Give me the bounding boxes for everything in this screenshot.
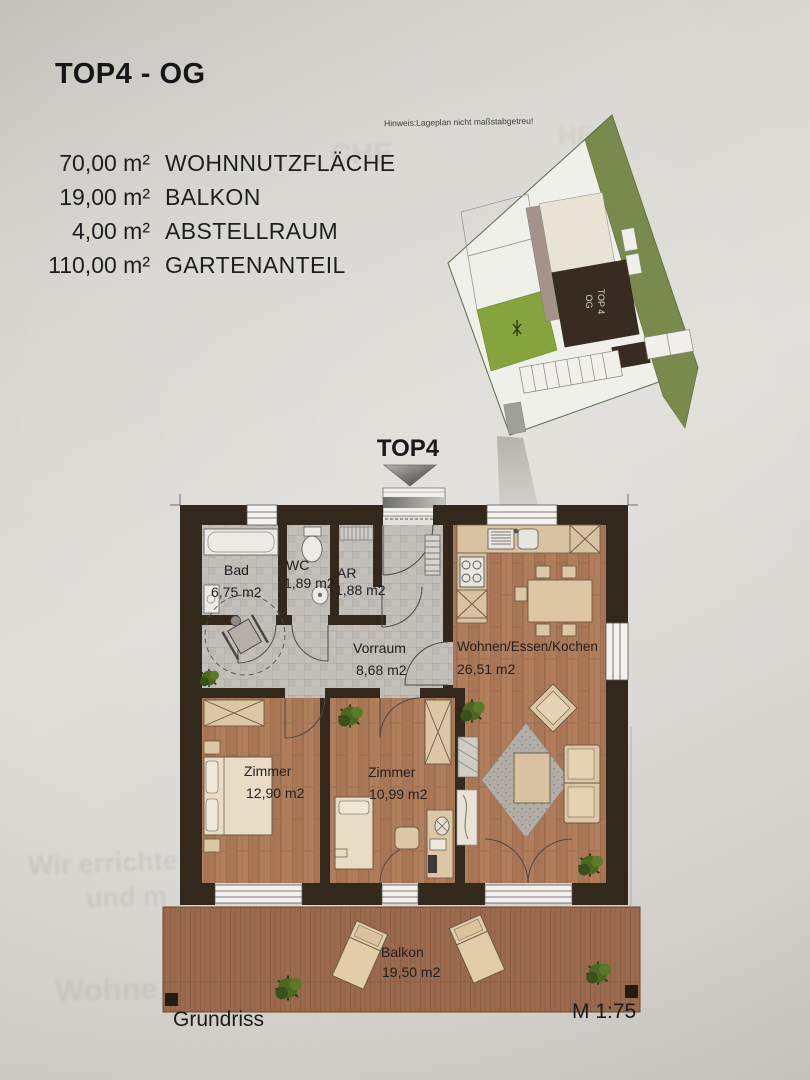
drawing-caption: Grundriss [173,1008,264,1032]
floor-plan: Balkon 19,50 m2 [160,487,645,1017]
plan-pointer-label: TOP4 [371,435,445,463]
nightstand [204,741,220,754]
bleedthrough-text: und m [85,881,167,915]
balcony-post [165,993,178,1006]
stat-row: 19,00 m² BALKON [36,180,395,214]
bathtub [204,529,278,555]
desk [427,810,453,878]
stat-label: BALKON [165,180,261,214]
wardrobe [425,700,451,764]
stat-row: 110,00 m² GARTENANTEIL [36,248,395,282]
stat-value: 110,00 m² [36,248,150,282]
room-area: 19,50 m2 [382,964,441,980]
room-area: 26,51 m2 [457,661,516,677]
stat-label: GARTENANTEIL [165,248,346,282]
stat-label: ABSTELLRAUM [165,214,338,248]
stat-row: 4,00 m² ABSTELLRAUM [36,214,395,248]
room-area: 8,68 m2 [356,662,407,678]
dining-table [528,580,592,622]
stat-label: WOHNNUTZFLÄCHE [165,146,395,180]
room-area: 1,89 m2 [284,575,335,591]
room-label: Zimmer [244,763,292,779]
room-label: WC [286,557,309,573]
bleedthrough-text: Wohne [55,971,158,1009]
area-stats: 70,00 m² WOHNNUTZFLÄCHE 19,00 m² BALKON … [36,146,395,282]
room-label: Vorraum [353,640,406,656]
site-plan: TOP 4 OG [435,88,715,548]
radiator [425,535,440,575]
stat-row: 70,00 m² WOHNNUTZFLÄCHE [36,146,395,180]
tall-cabinet [570,525,600,553]
room-label: Zimmer [368,764,416,780]
room-area: 10,99 m2 [369,786,428,802]
site-building-cream [539,193,614,273]
room-label: AR [337,565,356,581]
kitchen-sink [488,529,538,549]
arrow-down-icon [383,464,437,487]
base-cabinet [457,590,487,618]
page-title: TOP4 - OG [55,58,206,91]
bleedthrough-text: Wir errichte [28,845,179,881]
floor-lamp [457,790,477,845]
balcony-post [625,985,638,998]
scanned-floorplan-page: CHE HE Wir errichte und m Wohne TOP4 - O… [0,0,810,1080]
room-label: Bad [224,562,249,578]
stat-value: 19,00 m² [36,180,150,214]
room-area: 12,90 m2 [246,785,305,801]
coffee-table [514,753,550,803]
shelving [340,527,373,540]
room-label: Balkon [381,944,424,960]
wardrobe [204,700,264,726]
cooktop [460,557,484,587]
stat-value: 70,00 m² [36,146,150,180]
sofa [564,745,600,823]
nightstand [204,839,220,852]
svg-text:TOP 4: TOP 4 [596,289,606,315]
toilet-tank [304,527,321,536]
svg-text:OG: OG [584,294,594,308]
desk-chair [395,827,419,849]
wall-shelf [458,737,478,777]
drawing-scale: M 1:75 [572,1000,636,1024]
room-area: 6,75 m2 [211,584,262,600]
room-label: Wohnen/Essen/Kochen [457,639,598,654]
site-building-top4 [551,259,639,347]
single-bed [335,797,373,869]
stat-value: 4,00 m² [36,214,150,248]
room-area: 1,88 m2 [335,582,386,598]
balcony: Balkon 19,50 m2 [163,907,640,1012]
